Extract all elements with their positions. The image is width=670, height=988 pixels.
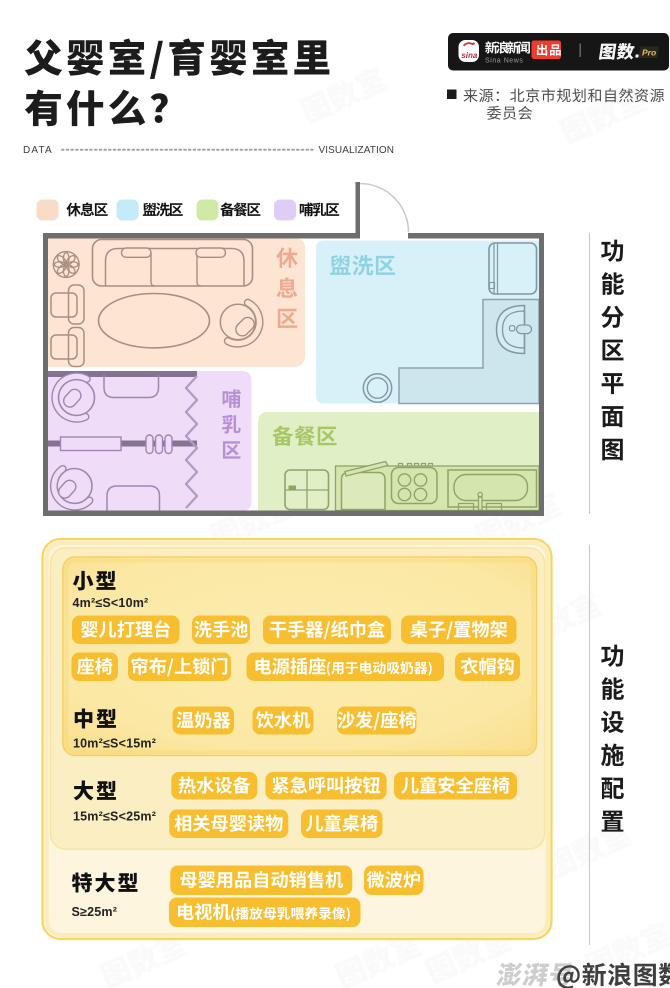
svg-text:DATA: DATA	[23, 145, 53, 156]
svg-text:15m²≤S<25m²: 15m²≤S<25m²	[73, 810, 156, 824]
svg-text:S≥25m²: S≥25m²	[72, 905, 118, 919]
svg-text:10m²≤S<15m²: 10m²≤S<15m²	[73, 737, 156, 751]
svg-text:Pro: Pro	[642, 48, 656, 58]
svg-text:Sina News: Sina News	[485, 58, 523, 65]
svg-text:sina: sina	[461, 51, 478, 60]
svg-text:VISUALIZATION: VISUALIZATION	[319, 145, 395, 156]
svg-text:4m²≤S<10m²: 4m²≤S<10m²	[73, 596, 149, 610]
